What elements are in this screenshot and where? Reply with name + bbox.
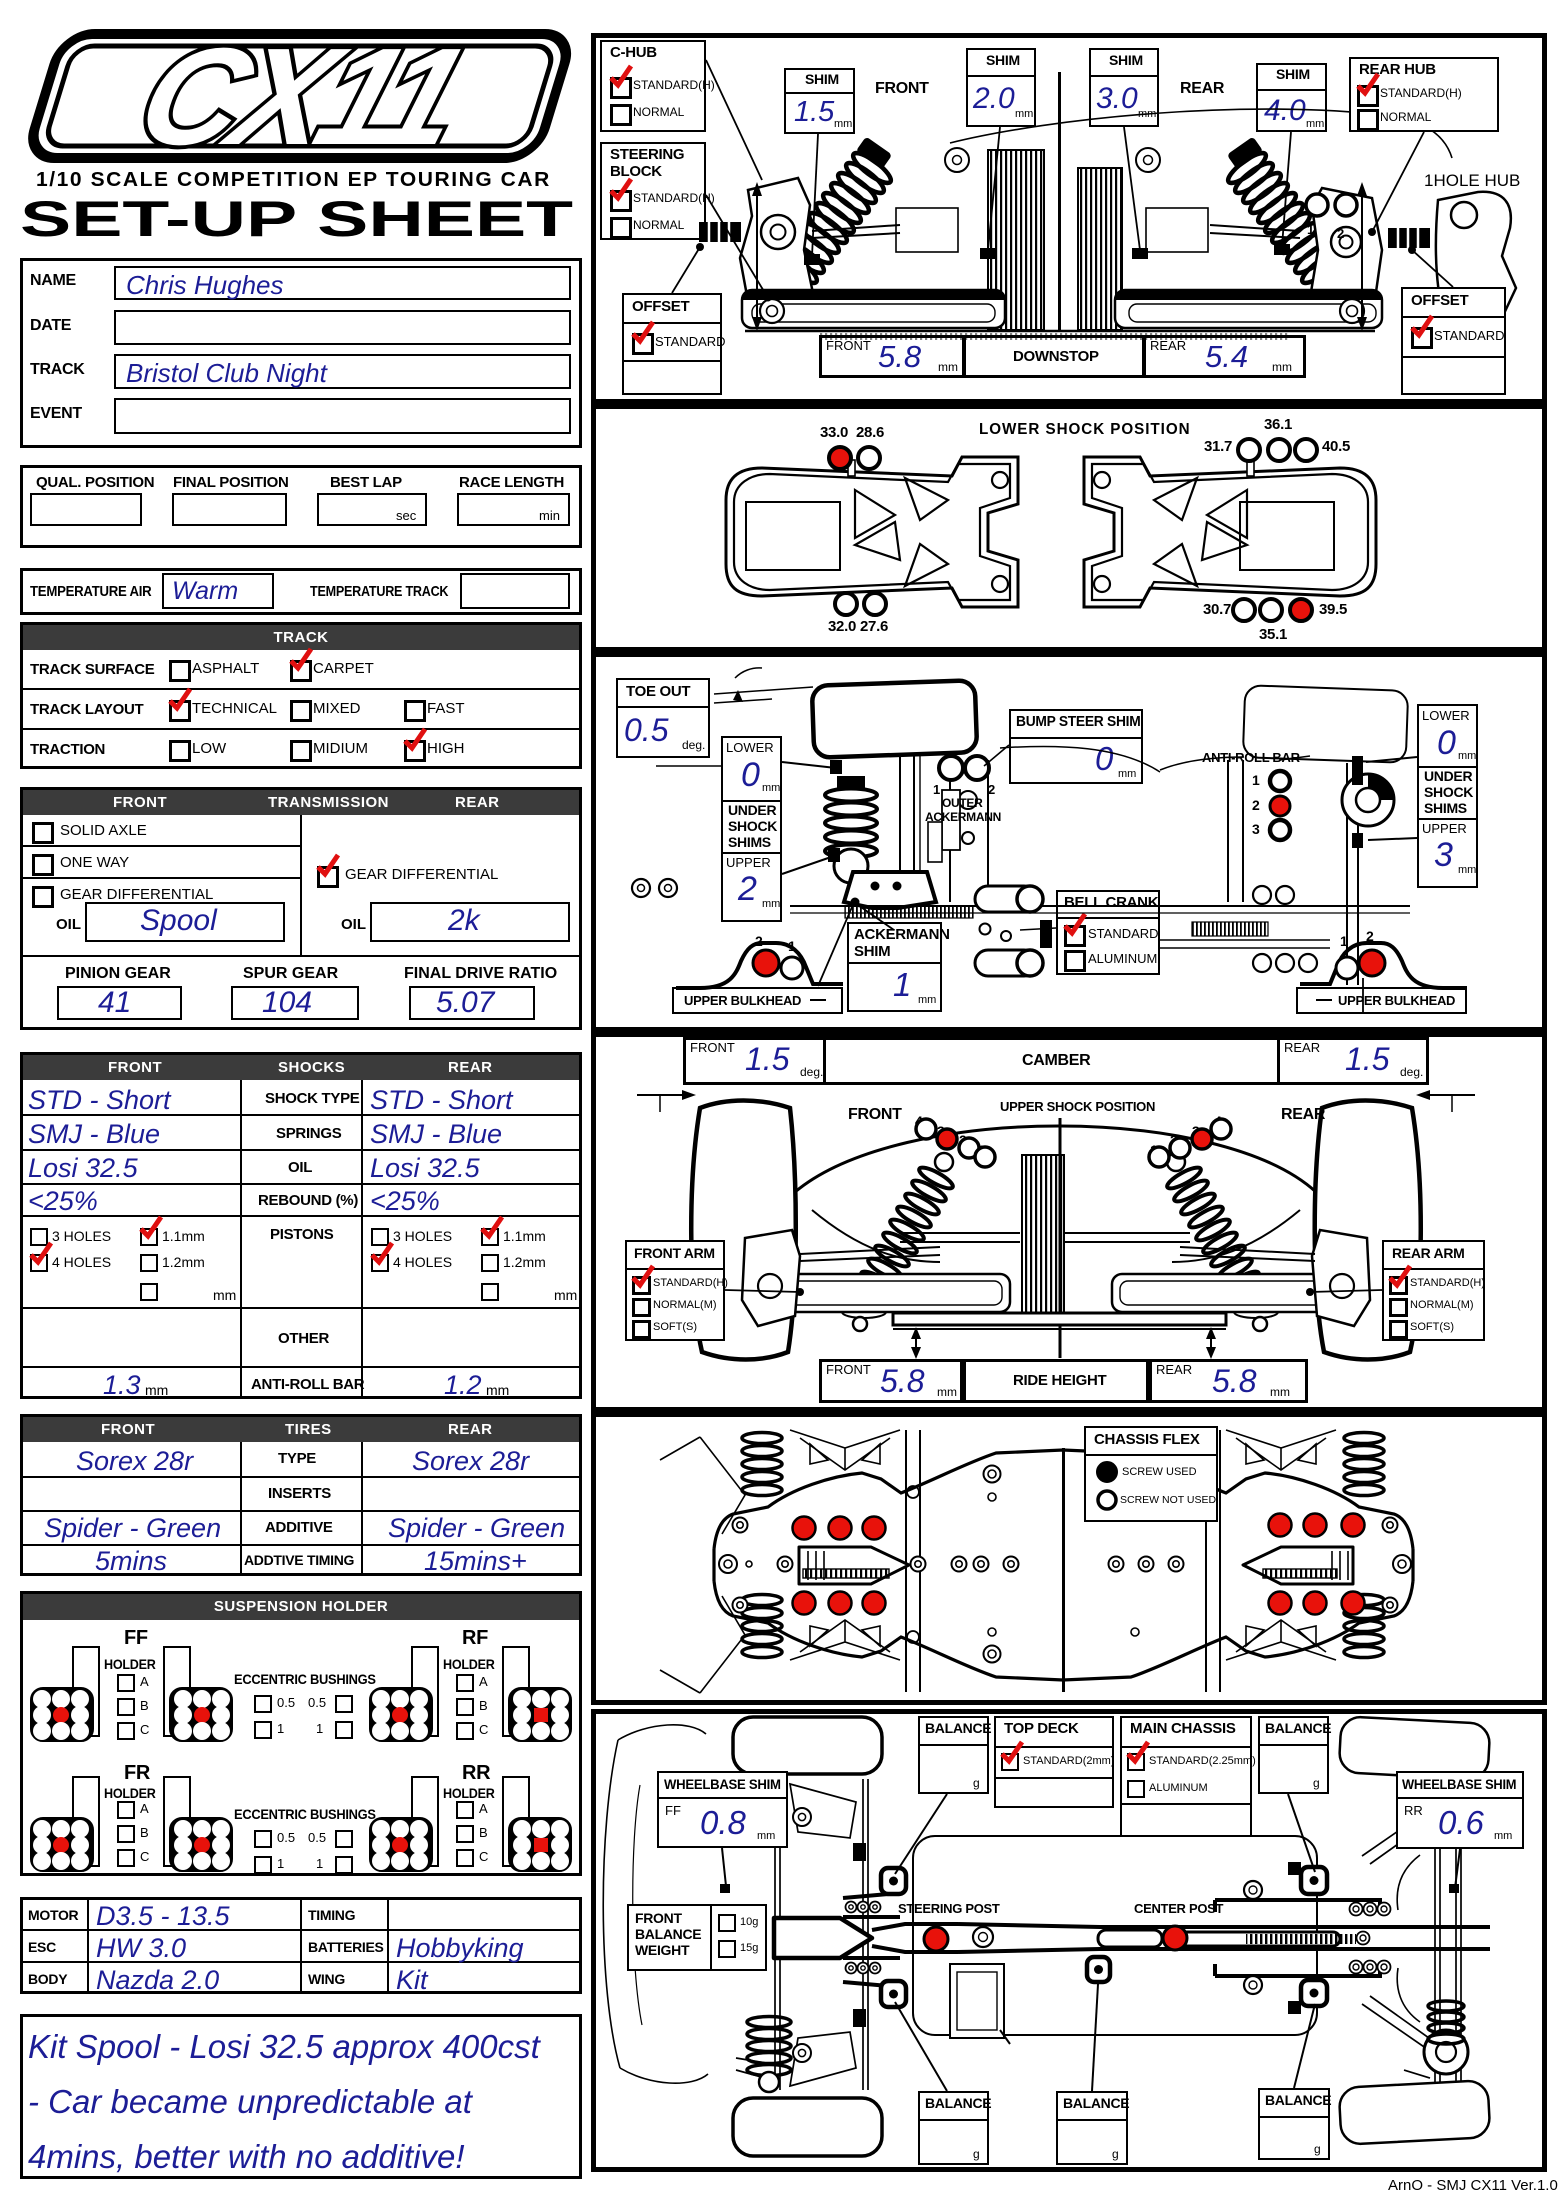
svg-text:CX11: CX11 (123, 19, 477, 173)
